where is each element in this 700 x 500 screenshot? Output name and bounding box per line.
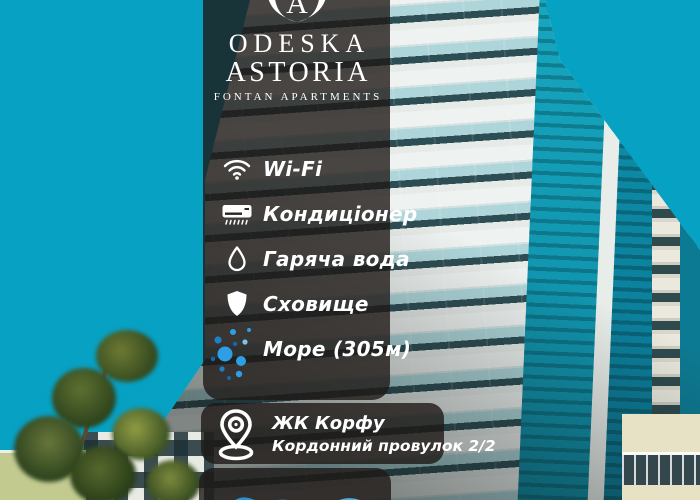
cream-building	[622, 414, 700, 500]
amenities-list: Wi-Fi Кондиціонер	[203, 146, 390, 371]
amenity-row-wifi: Wi-Fi	[203, 146, 390, 191]
brand-name-line1: ODESKA	[203, 29, 390, 59]
amenity-label: Гаряча вода	[263, 247, 410, 271]
waves-card	[199, 468, 391, 500]
balcony-glass	[622, 455, 700, 485]
hot-water-drop-icon	[211, 245, 263, 272]
brand-name-line2: ASTORIA	[203, 57, 390, 89]
wifi-icon	[211, 157, 263, 181]
map-pin-icon	[213, 407, 259, 461]
shield-icon	[211, 290, 263, 317]
air-conditioner-icon	[211, 203, 263, 225]
address-text: ЖК Корфу Кордонний провулок 2/2	[272, 413, 496, 455]
street-address: Кордонний провулок 2/2	[272, 437, 496, 455]
apartment-promo-image: A ODESKA ASTORIA FONTAN APARTMENTS Wi-Fi	[0, 0, 700, 500]
amenity-label: Wi-Fi	[263, 157, 390, 181]
amenity-label: Кондиціонер	[263, 202, 418, 226]
info-panel: A ODESKA ASTORIA FONTAN APARTMENTS Wi-Fi	[203, 0, 390, 400]
amenity-row-air-conditioner: Кондиціонер	[203, 191, 390, 236]
amenity-row-sea: Море (305м)	[203, 326, 390, 371]
brand-tagline: FONTAN APARTMENTS	[203, 91, 390, 103]
tree-foliage	[146, 460, 200, 500]
amenity-row-hot-water: Гаряча вода	[203, 236, 390, 281]
amenity-label: Сховище	[263, 292, 390, 316]
complex-name: ЖК Корфу	[272, 413, 496, 434]
svg-text:A: A	[286, 0, 308, 20]
sea-bubbles-icon	[211, 326, 263, 371]
address-card: ЖК Корфу Кордонний провулок 2/2	[201, 403, 444, 464]
tree-foliage	[96, 330, 158, 382]
tree-foliage	[70, 446, 136, 500]
amenity-label: Море (305м)	[263, 337, 411, 361]
